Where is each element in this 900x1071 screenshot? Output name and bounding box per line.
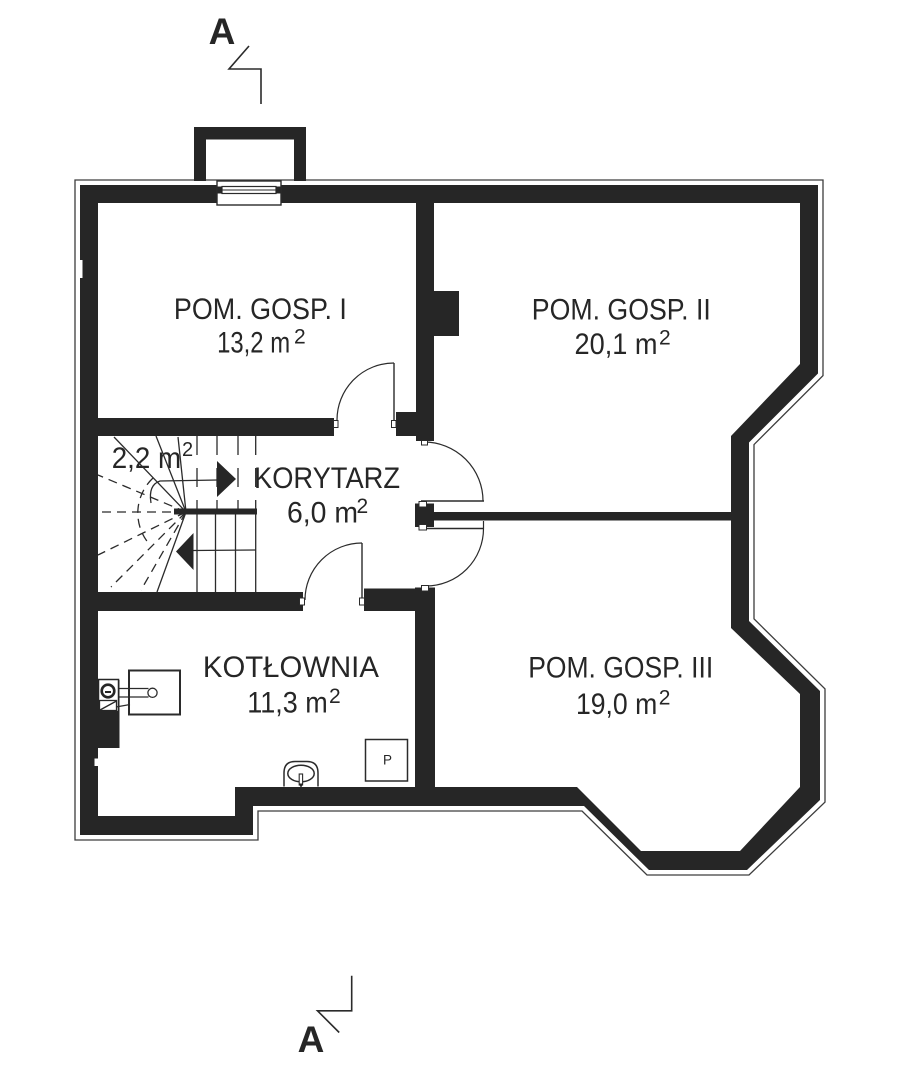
svg-text:POM. GOSP. II: POM. GOSP. II [532, 294, 711, 327]
svg-text:2: 2 [182, 439, 193, 461]
svg-text:6,0 m: 6,0 m [287, 497, 358, 530]
svg-text:POM. GOSP. I: POM. GOSP. I [174, 293, 347, 326]
svg-text:2: 2 [294, 325, 306, 348]
svg-text:20,1 m: 20,1 m [575, 328, 658, 361]
svg-text:11,3 m: 11,3 m [247, 687, 328, 720]
svg-text:POM. GOSP. III: POM. GOSP. III [528, 651, 713, 684]
svg-text:2: 2 [329, 685, 341, 708]
svg-text:13,2 m: 13,2 m [217, 327, 290, 360]
svg-text:A: A [298, 1019, 325, 1060]
svg-text:P: P [383, 753, 392, 768]
svg-text:2: 2 [659, 687, 671, 710]
svg-text:19,0 m: 19,0 m [576, 688, 657, 721]
svg-text:2: 2 [659, 327, 671, 350]
svg-text:KOTŁOWNIA: KOTŁOWNIA [203, 651, 379, 684]
svg-text:KORYTARZ: KORYTARZ [254, 462, 400, 495]
svg-text:2: 2 [357, 495, 369, 518]
svg-text:A: A [209, 11, 236, 52]
